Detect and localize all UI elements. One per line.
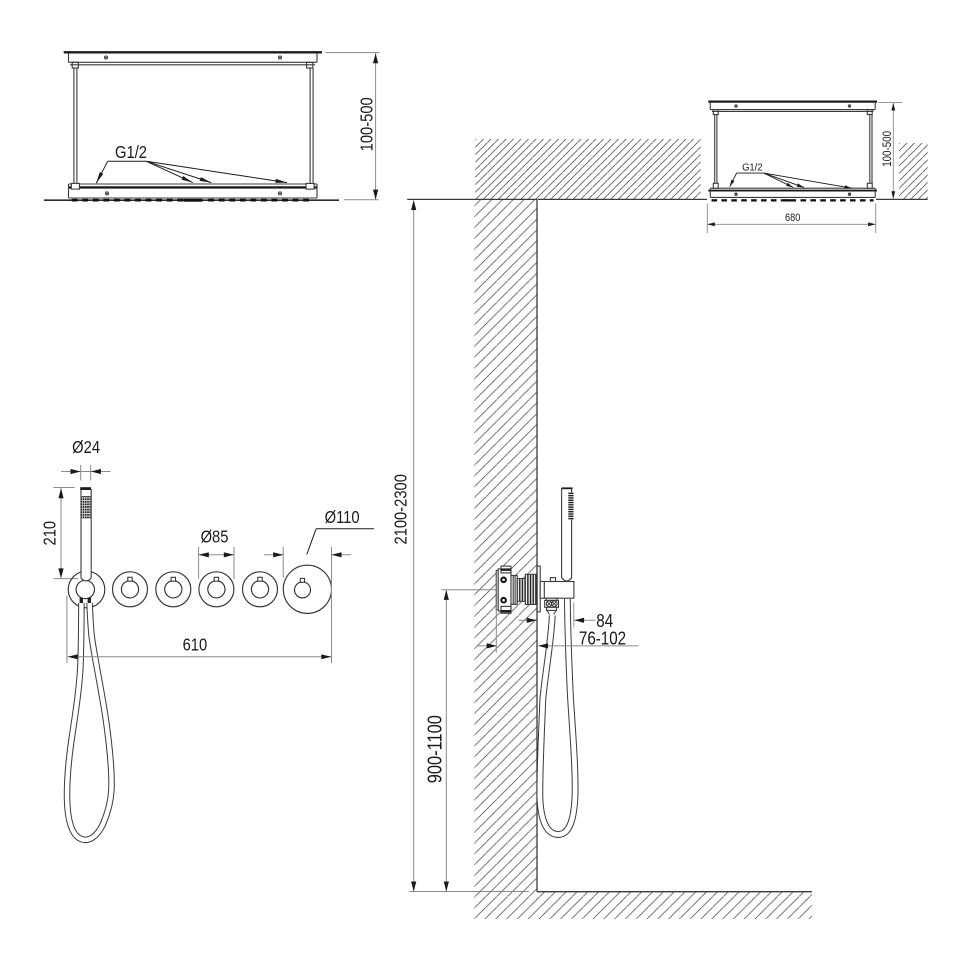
svg-text:610: 610 xyxy=(183,635,208,655)
svg-text:100-500: 100-500 xyxy=(357,97,377,151)
svg-text:100-500: 100-500 xyxy=(882,131,895,167)
svg-text:900-1100: 900-1100 xyxy=(423,715,446,783)
svg-text:2100-2300: 2100-2300 xyxy=(391,474,411,544)
svg-text:G1/2: G1/2 xyxy=(742,162,763,174)
svg-text:210: 210 xyxy=(40,521,60,546)
svg-text:Ø110: Ø110 xyxy=(325,508,360,528)
svg-text:76-102: 76-102 xyxy=(579,628,626,649)
svg-text:Ø85: Ø85 xyxy=(201,527,229,547)
svg-text:Ø24: Ø24 xyxy=(72,438,100,458)
svg-text:680: 680 xyxy=(785,212,801,224)
svg-text:G1/2: G1/2 xyxy=(115,143,147,163)
